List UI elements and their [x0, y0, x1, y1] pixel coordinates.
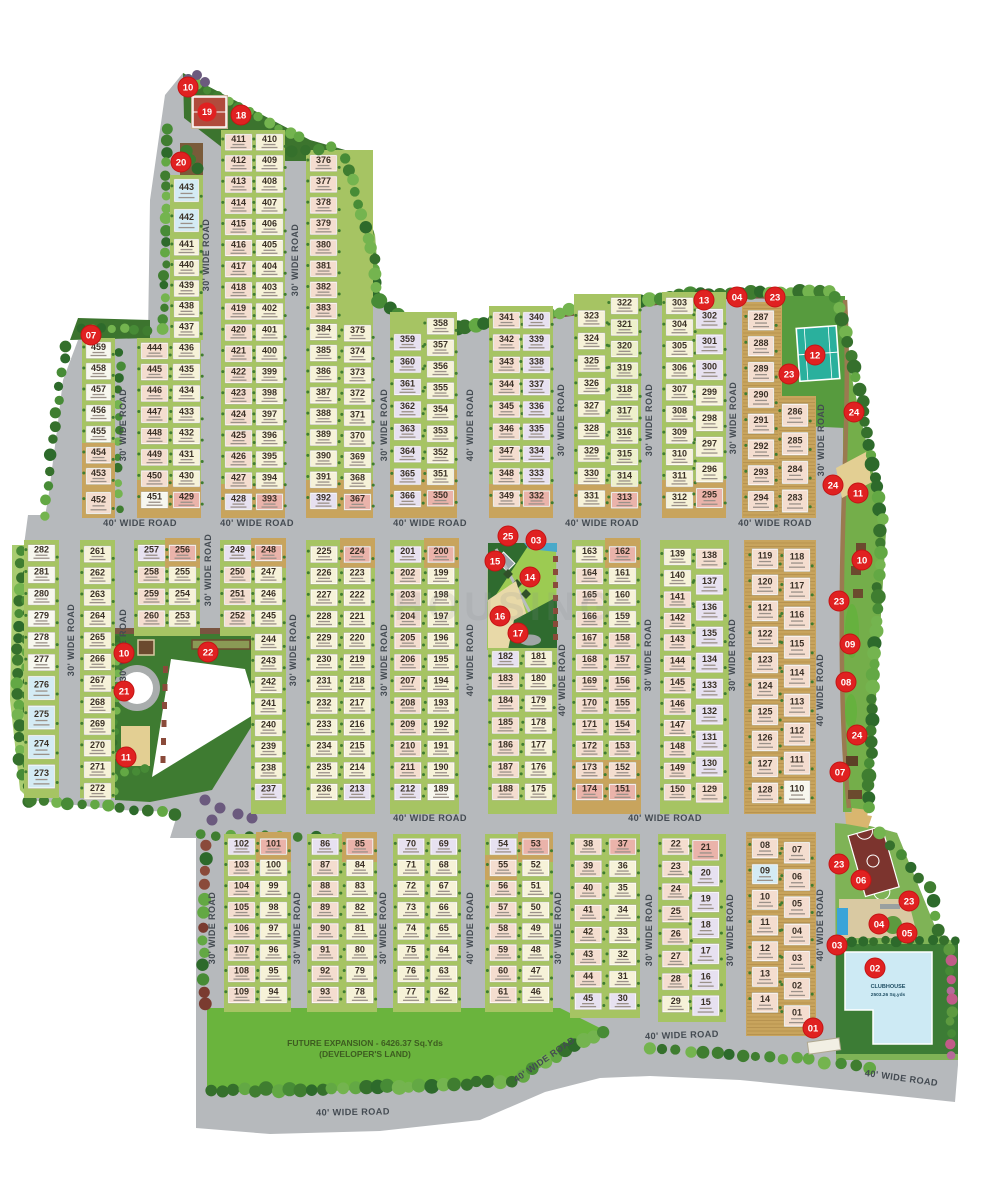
svg-text:90: 90 — [320, 923, 330, 933]
svg-text:09: 09 — [760, 866, 770, 876]
svg-text:50: 50 — [531, 902, 541, 912]
svg-text:331: 331 — [584, 490, 599, 500]
svg-text:33: 33 — [618, 927, 628, 937]
svg-text:16: 16 — [701, 971, 711, 981]
svg-text:209: 209 — [400, 719, 415, 729]
svg-text:40: 40 — [583, 883, 593, 893]
svg-text:169: 169 — [582, 676, 597, 686]
svg-text:134: 134 — [702, 654, 717, 664]
svg-text:218: 218 — [350, 676, 365, 686]
svg-text:40' WIDE ROAD: 40' WIDE ROAD — [738, 518, 812, 528]
svg-text:194: 194 — [433, 676, 448, 686]
svg-text:14: 14 — [760, 994, 770, 1004]
svg-text:30' WIDE ROAD: 30' WIDE ROAD — [379, 624, 389, 696]
svg-text:381: 381 — [316, 260, 331, 270]
svg-text:27: 27 — [671, 951, 681, 961]
svg-text:116: 116 — [790, 610, 805, 620]
svg-text:275: 275 — [34, 709, 49, 719]
svg-text:CLUBHOUSE: CLUBHOUSE — [871, 984, 906, 990]
svg-text:23: 23 — [671, 861, 681, 871]
svg-text:269: 269 — [90, 718, 105, 728]
svg-text:167: 167 — [582, 633, 597, 643]
svg-text:208: 208 — [400, 697, 415, 707]
svg-text:360: 360 — [400, 356, 415, 366]
svg-text:91: 91 — [320, 944, 330, 954]
svg-text:454: 454 — [91, 447, 106, 457]
svg-text:159: 159 — [615, 611, 630, 621]
svg-text:04: 04 — [732, 292, 743, 303]
svg-text:14: 14 — [525, 572, 536, 583]
svg-text:226: 226 — [316, 568, 331, 578]
svg-text:417: 417 — [231, 261, 246, 271]
svg-text:10: 10 — [119, 648, 130, 659]
svg-text:338: 338 — [529, 357, 544, 367]
svg-text:30' WIDE ROAD: 30' WIDE ROAD — [290, 224, 300, 296]
svg-text:81: 81 — [355, 923, 365, 933]
svg-text:235: 235 — [316, 762, 331, 772]
svg-text:384: 384 — [316, 324, 331, 334]
svg-text:25: 25 — [671, 906, 681, 916]
svg-text:150: 150 — [670, 784, 685, 794]
svg-text:308: 308 — [672, 406, 687, 416]
svg-text:300: 300 — [702, 362, 717, 372]
svg-text:422: 422 — [231, 367, 246, 377]
svg-text:286: 286 — [787, 407, 802, 417]
svg-text:241: 241 — [261, 698, 276, 708]
svg-text:453: 453 — [91, 468, 106, 478]
svg-text:05: 05 — [792, 899, 802, 909]
svg-text:66: 66 — [439, 902, 449, 912]
svg-text:368: 368 — [350, 473, 365, 483]
svg-text:394: 394 — [262, 472, 277, 482]
svg-text:142: 142 — [670, 613, 685, 623]
svg-text:264: 264 — [90, 611, 105, 621]
svg-text:409: 409 — [262, 155, 277, 165]
svg-text:420: 420 — [231, 324, 246, 334]
svg-text:444: 444 — [147, 343, 162, 353]
svg-text:234: 234 — [316, 741, 331, 751]
svg-text:322: 322 — [617, 298, 632, 308]
svg-text:20: 20 — [176, 157, 187, 168]
svg-text:451: 451 — [147, 492, 162, 502]
svg-text:128: 128 — [757, 784, 772, 794]
svg-text:247: 247 — [261, 567, 276, 577]
svg-text:445: 445 — [147, 364, 162, 374]
svg-text:122: 122 — [757, 628, 772, 638]
svg-text:121: 121 — [757, 602, 772, 612]
svg-text:138: 138 — [702, 550, 717, 560]
svg-text:34: 34 — [618, 905, 628, 915]
svg-text:423: 423 — [231, 388, 246, 398]
svg-text:48: 48 — [531, 944, 541, 954]
svg-text:60: 60 — [498, 966, 508, 976]
svg-text:424: 424 — [231, 409, 246, 419]
svg-text:287: 287 — [753, 312, 768, 322]
svg-text:24: 24 — [852, 730, 863, 741]
svg-text:421: 421 — [231, 345, 246, 355]
svg-text:305: 305 — [672, 341, 687, 351]
svg-text:23: 23 — [834, 596, 845, 607]
svg-text:178: 178 — [531, 717, 546, 727]
svg-text:398: 398 — [262, 388, 277, 398]
svg-text:117: 117 — [790, 581, 805, 591]
svg-text:98: 98 — [268, 902, 278, 912]
svg-text:355: 355 — [433, 382, 448, 392]
svg-text:250: 250 — [230, 567, 245, 577]
svg-text:328: 328 — [584, 423, 599, 433]
svg-text:263: 263 — [90, 589, 105, 599]
svg-text:30' WIDE ROAD: 30' WIDE ROAD — [207, 892, 217, 964]
svg-text:76: 76 — [406, 966, 416, 976]
svg-text:30' WIDE ROAD: 30' WIDE ROAD — [66, 604, 76, 676]
svg-text:02: 02 — [870, 963, 881, 974]
svg-text:346: 346 — [499, 423, 514, 433]
svg-text:378: 378 — [316, 197, 331, 207]
svg-text:183: 183 — [498, 673, 513, 683]
svg-text:26: 26 — [671, 928, 681, 938]
svg-text:270: 270 — [90, 740, 105, 750]
svg-text:294: 294 — [753, 493, 768, 503]
svg-text:20: 20 — [701, 868, 711, 878]
svg-text:298: 298 — [702, 413, 717, 423]
svg-text:407: 407 — [262, 197, 277, 207]
svg-text:354: 354 — [433, 404, 448, 414]
svg-text:182: 182 — [498, 651, 513, 661]
svg-text:05: 05 — [902, 928, 913, 939]
svg-text:77: 77 — [406, 987, 416, 997]
svg-text:428: 428 — [231, 493, 246, 503]
svg-text:238: 238 — [261, 762, 276, 772]
svg-text:11: 11 — [853, 488, 864, 499]
svg-text:173: 173 — [582, 762, 597, 772]
svg-text:382: 382 — [316, 282, 331, 292]
svg-text:FUTURE EXPANSION - 6426.37 Sq.: FUTURE EXPANSION - 6426.37 Sq.Yds — [287, 1038, 443, 1048]
svg-text:450: 450 — [147, 470, 162, 480]
svg-text:92: 92 — [320, 966, 330, 976]
svg-text:15: 15 — [490, 556, 501, 567]
svg-text:97: 97 — [268, 923, 278, 933]
svg-text:139: 139 — [670, 549, 685, 559]
svg-text:56: 56 — [498, 881, 508, 891]
svg-text:12: 12 — [760, 943, 770, 953]
svg-text:353: 353 — [433, 425, 448, 435]
svg-text:103: 103 — [234, 860, 249, 870]
svg-text:307: 307 — [672, 384, 687, 394]
svg-text:246: 246 — [261, 588, 276, 598]
svg-text:36: 36 — [618, 860, 628, 870]
svg-text:401: 401 — [262, 324, 277, 334]
svg-text:386: 386 — [316, 366, 331, 376]
svg-text:212: 212 — [400, 784, 415, 794]
svg-text:45: 45 — [583, 993, 593, 1003]
svg-text:123: 123 — [757, 654, 772, 664]
svg-text:120: 120 — [757, 576, 772, 586]
svg-text:279: 279 — [34, 610, 49, 620]
svg-text:52: 52 — [531, 860, 541, 870]
svg-text:332: 332 — [529, 490, 544, 500]
svg-text:186: 186 — [498, 739, 513, 749]
svg-text:65: 65 — [439, 923, 449, 933]
svg-text:282: 282 — [34, 545, 49, 555]
svg-text:17: 17 — [513, 628, 524, 639]
svg-text:193: 193 — [433, 697, 448, 707]
svg-text:80: 80 — [355, 944, 365, 954]
svg-text:49: 49 — [531, 923, 541, 933]
svg-text:95: 95 — [268, 966, 278, 976]
svg-text:99: 99 — [268, 881, 278, 891]
svg-text:236: 236 — [316, 784, 331, 794]
svg-text:126: 126 — [757, 732, 772, 742]
svg-text:219: 219 — [350, 654, 365, 664]
svg-text:153: 153 — [615, 741, 630, 751]
svg-text:30' WIDE ROAD: 30' WIDE ROAD — [118, 389, 128, 461]
svg-text:371: 371 — [350, 409, 365, 419]
svg-text:130: 130 — [702, 758, 717, 768]
svg-text:04: 04 — [792, 926, 802, 936]
svg-text:30' WIDE ROAD: 30' WIDE ROAD — [378, 892, 388, 964]
svg-text:168: 168 — [582, 654, 597, 664]
svg-text:273: 273 — [34, 768, 49, 778]
svg-text:154: 154 — [615, 719, 630, 729]
svg-text:12: 12 — [810, 350, 821, 361]
svg-text:190: 190 — [433, 762, 448, 772]
svg-text:30' WIDE ROAD: 30' WIDE ROAD — [201, 219, 211, 291]
svg-text:225: 225 — [316, 546, 331, 556]
svg-text:30' WIDE ROAD: 30' WIDE ROAD — [816, 404, 826, 476]
svg-text:257: 257 — [144, 545, 159, 555]
svg-text:358: 358 — [433, 318, 448, 328]
svg-text:410: 410 — [262, 134, 277, 144]
svg-text:10: 10 — [183, 82, 194, 93]
svg-text:393: 393 — [262, 493, 277, 503]
svg-text:385: 385 — [316, 345, 331, 355]
svg-text:59: 59 — [498, 944, 508, 954]
svg-text:284: 284 — [787, 464, 802, 474]
svg-text:302: 302 — [702, 310, 717, 320]
svg-text:125: 125 — [757, 706, 772, 716]
svg-text:341: 341 — [499, 312, 514, 322]
svg-text:430: 430 — [179, 470, 194, 480]
svg-text:01: 01 — [792, 1008, 802, 1018]
svg-text:243: 243 — [261, 655, 276, 665]
svg-text:436: 436 — [179, 343, 194, 353]
svg-text:03: 03 — [832, 940, 843, 951]
svg-text:356: 356 — [433, 361, 448, 371]
svg-text:315: 315 — [617, 449, 632, 459]
svg-text:320: 320 — [617, 341, 632, 351]
svg-text:364: 364 — [400, 446, 415, 456]
svg-text:136: 136 — [702, 602, 717, 612]
svg-text:214: 214 — [350, 762, 365, 772]
svg-text:223: 223 — [350, 568, 365, 578]
svg-text:124: 124 — [757, 680, 772, 690]
svg-text:446: 446 — [147, 385, 162, 395]
svg-text:13: 13 — [699, 295, 710, 306]
svg-text:67: 67 — [439, 881, 449, 891]
svg-text:365: 365 — [400, 468, 415, 478]
svg-text:321: 321 — [617, 319, 632, 329]
svg-text:143: 143 — [670, 634, 685, 644]
svg-text:129: 129 — [702, 784, 717, 794]
svg-text:196: 196 — [433, 633, 448, 643]
svg-text:213: 213 — [350, 784, 365, 794]
svg-text:372: 372 — [350, 388, 365, 398]
svg-text:115: 115 — [790, 639, 805, 649]
svg-text:174: 174 — [582, 784, 597, 794]
svg-text:42: 42 — [583, 927, 593, 937]
svg-text:215: 215 — [350, 741, 365, 751]
svg-text:248: 248 — [261, 545, 276, 555]
svg-text:277: 277 — [34, 654, 49, 664]
svg-text:40' WIDE ROAD: 40' WIDE ROAD — [465, 389, 475, 461]
svg-text:31: 31 — [618, 971, 628, 981]
svg-text:145: 145 — [670, 677, 685, 687]
svg-text:221: 221 — [350, 611, 365, 621]
svg-text:388: 388 — [316, 408, 331, 418]
svg-text:239: 239 — [261, 741, 276, 751]
svg-text:08: 08 — [760, 840, 770, 850]
svg-text:439: 439 — [179, 280, 194, 290]
svg-text:281: 281 — [34, 567, 49, 577]
svg-text:370: 370 — [350, 430, 365, 440]
svg-text:452: 452 — [91, 495, 106, 505]
svg-text:88: 88 — [320, 881, 330, 891]
svg-text:202: 202 — [400, 568, 415, 578]
svg-text:105: 105 — [234, 902, 249, 912]
svg-text:395: 395 — [262, 451, 277, 461]
svg-text:323: 323 — [584, 310, 599, 320]
svg-text:32: 32 — [618, 949, 628, 959]
svg-text:189: 189 — [433, 784, 448, 794]
svg-text:75: 75 — [406, 944, 416, 954]
svg-text:229: 229 — [316, 633, 331, 643]
svg-text:427: 427 — [231, 472, 246, 482]
svg-text:455: 455 — [91, 426, 106, 436]
svg-text:318: 318 — [617, 384, 632, 394]
svg-text:74: 74 — [406, 923, 416, 933]
svg-text:46: 46 — [531, 987, 541, 997]
svg-text:40' WIDE ROAD: 40' WIDE ROAD — [465, 892, 475, 964]
svg-text:40' WIDE ROAD: 40' WIDE ROAD — [628, 813, 702, 823]
svg-text:172: 172 — [582, 741, 597, 751]
svg-text:301: 301 — [702, 336, 717, 346]
svg-text:272: 272 — [90, 783, 105, 793]
svg-text:177: 177 — [531, 739, 546, 749]
svg-text:390: 390 — [316, 450, 331, 460]
svg-text:333: 333 — [529, 468, 544, 478]
svg-text:137: 137 — [702, 576, 717, 586]
svg-text:41: 41 — [583, 905, 593, 915]
svg-text:21: 21 — [701, 842, 711, 852]
svg-text:40' WIDE ROAD: 40' WIDE ROAD — [316, 1106, 390, 1117]
svg-text:148: 148 — [670, 741, 685, 751]
svg-text:411: 411 — [231, 134, 246, 144]
svg-text:373: 373 — [350, 367, 365, 377]
svg-text:414: 414 — [231, 197, 246, 207]
svg-text:359: 359 — [400, 334, 415, 344]
svg-text:336: 336 — [529, 401, 544, 411]
svg-text:216: 216 — [350, 719, 365, 729]
svg-text:68: 68 — [439, 860, 449, 870]
svg-text:70: 70 — [406, 838, 416, 848]
svg-text:82: 82 — [355, 902, 365, 912]
svg-text:431: 431 — [179, 449, 194, 459]
svg-text:192: 192 — [433, 719, 448, 729]
svg-text:171: 171 — [582, 719, 597, 729]
svg-text:391: 391 — [316, 471, 331, 481]
svg-text:40' WIDE ROAD: 40' WIDE ROAD — [565, 518, 639, 528]
svg-text:30' WIDE ROAD: 30' WIDE ROAD — [556, 384, 566, 456]
svg-text:317: 317 — [617, 406, 632, 416]
svg-text:55: 55 — [498, 860, 508, 870]
svg-text:400: 400 — [262, 345, 277, 355]
svg-text:256: 256 — [175, 545, 190, 555]
svg-text:376: 376 — [316, 155, 331, 165]
svg-text:85: 85 — [355, 838, 365, 848]
svg-text:349: 349 — [499, 490, 514, 500]
svg-text:40' WIDE ROAD: 40' WIDE ROAD — [557, 644, 567, 716]
svg-text:39: 39 — [583, 860, 593, 870]
svg-text:157: 157 — [615, 654, 630, 664]
svg-text:61: 61 — [498, 987, 508, 997]
svg-text:255: 255 — [175, 567, 190, 577]
svg-text:23: 23 — [784, 369, 795, 380]
svg-text:233: 233 — [316, 719, 331, 729]
svg-text:30' WIDE ROAD: 30' WIDE ROAD — [728, 382, 738, 454]
svg-text:100: 100 — [266, 860, 281, 870]
svg-text:242: 242 — [261, 677, 276, 687]
svg-text:289: 289 — [753, 364, 768, 374]
svg-text:06: 06 — [792, 872, 802, 882]
svg-text:404: 404 — [262, 261, 277, 271]
svg-text:89: 89 — [320, 902, 330, 912]
svg-text:425: 425 — [231, 430, 246, 440]
svg-text:30' WIDE ROAD: 30' WIDE ROAD — [725, 894, 735, 966]
svg-text:35: 35 — [618, 883, 628, 893]
svg-text:265: 265 — [90, 632, 105, 642]
svg-text:412: 412 — [231, 155, 246, 165]
svg-text:327: 327 — [584, 400, 599, 410]
svg-text:258: 258 — [144, 567, 159, 577]
svg-text:40' WIDE ROAD: 40' WIDE ROAD — [815, 654, 825, 726]
svg-text:283: 283 — [787, 493, 802, 503]
svg-text:64: 64 — [439, 944, 449, 954]
svg-text:191: 191 — [433, 741, 448, 751]
svg-text:19: 19 — [202, 107, 212, 117]
svg-text:72: 72 — [406, 881, 416, 891]
svg-text:389: 389 — [316, 429, 331, 439]
svg-text:222: 222 — [350, 589, 365, 599]
svg-text:30' WIDE ROAD: 30' WIDE ROAD — [643, 619, 653, 691]
svg-text:217: 217 — [350, 697, 365, 707]
svg-text:206: 206 — [400, 654, 415, 664]
svg-text:112: 112 — [790, 726, 805, 736]
svg-text:367: 367 — [350, 494, 365, 504]
svg-text:415: 415 — [231, 219, 246, 229]
svg-text:429: 429 — [179, 492, 194, 502]
svg-text:441: 441 — [179, 239, 194, 249]
svg-text:442: 442 — [179, 212, 194, 222]
svg-text:62: 62 — [439, 987, 449, 997]
svg-text:262: 262 — [90, 567, 105, 577]
svg-text:106: 106 — [234, 923, 249, 933]
svg-text:16: 16 — [495, 611, 506, 622]
svg-text:13: 13 — [760, 969, 770, 979]
svg-text:132: 132 — [702, 706, 717, 716]
svg-text:101: 101 — [266, 838, 281, 848]
svg-text:151: 151 — [615, 784, 630, 794]
svg-text:306: 306 — [672, 362, 687, 372]
